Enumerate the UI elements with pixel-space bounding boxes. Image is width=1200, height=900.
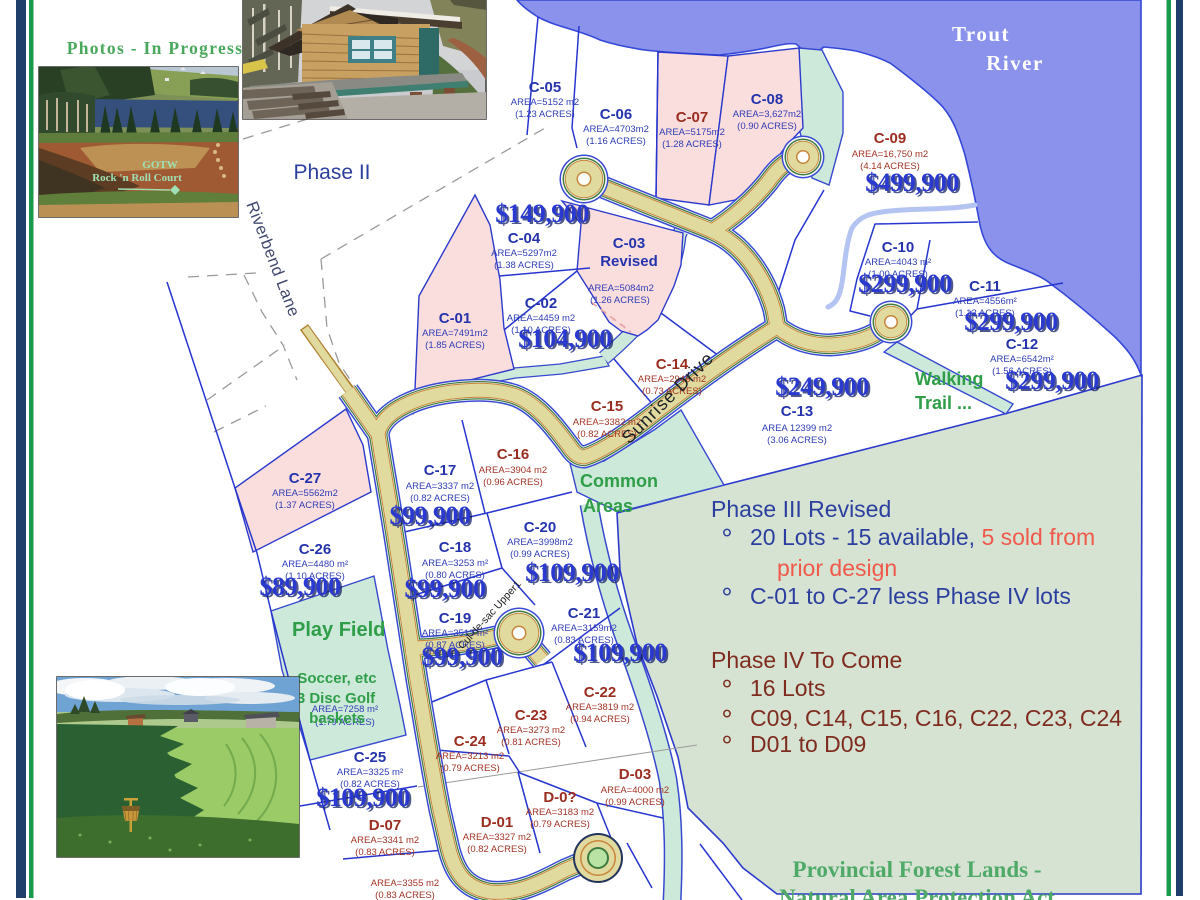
svg-text:C-26: C-26: [299, 541, 332, 558]
svg-text:Common: Common: [580, 471, 658, 491]
svg-text:$99,900: $99,900: [390, 501, 472, 530]
svg-text:AREA=4459 m2: AREA=4459 m2: [507, 313, 575, 324]
svg-text:D01 to D09: D01 to D09: [750, 731, 866, 757]
svg-text:20 Lots - 15 available, 5 sold: 20 Lots - 15 available, 5 sold from: [750, 524, 1095, 550]
svg-text:C-15: C-15: [591, 398, 624, 415]
svg-text:AREA=3325 m²: AREA=3325 m²: [337, 767, 403, 778]
svg-text:(1.28 ACRES): (1.28 ACRES): [662, 139, 722, 150]
svg-text:(0.82 ACRES): (0.82 ACRES): [467, 844, 527, 855]
svg-text:(0.81 ACRES): (0.81 ACRES): [501, 737, 561, 748]
svg-text:C-16: C-16: [497, 446, 530, 463]
svg-text:River: River: [986, 51, 1044, 75]
svg-text:C-20: C-20: [524, 519, 557, 536]
svg-text:D-03: D-03: [619, 766, 652, 783]
svg-text:Phase II: Phase II: [293, 161, 370, 184]
svg-text:$299,900: $299,900: [1005, 366, 1099, 395]
svg-text:AREA=4043 m²: AREA=4043 m²: [865, 257, 931, 268]
svg-text:Phase III Revised: Phase III Revised: [711, 496, 891, 522]
svg-text:C-24: C-24: [454, 733, 487, 750]
svg-text:$299,900: $299,900: [858, 269, 952, 298]
svg-text:$99,900: $99,900: [405, 574, 487, 603]
svg-text:AREA=5297m2: AREA=5297m2: [491, 248, 557, 259]
svg-text:C-01 to C-27 less Phase IV lot: C-01 to C-27 less Phase IV lots: [750, 583, 1071, 609]
svg-text:$149,900: $149,900: [495, 199, 589, 228]
svg-text:°: °: [721, 730, 732, 761]
svg-text:baskets: baskets: [309, 710, 365, 727]
svg-text:$104,900: $104,900: [518, 324, 612, 353]
svg-text:AREA=4703m2: AREA=4703m2: [583, 124, 649, 135]
svg-text:C-25: C-25: [354, 749, 387, 766]
svg-text:C-18: C-18: [439, 539, 472, 556]
svg-text:Play Field: Play Field: [292, 619, 385, 641]
svg-text:AREA=7491m2: AREA=7491m2: [422, 328, 488, 339]
svg-text:AREA=3341 m2: AREA=3341 m2: [351, 835, 419, 846]
svg-text:AREA=3327 m2: AREA=3327 m2: [463, 832, 531, 843]
svg-text:(0.90 ACRES): (0.90 ACRES): [737, 121, 797, 132]
svg-text:C-09: C-09: [874, 130, 907, 147]
svg-text:Trout: Trout: [952, 22, 1010, 46]
svg-text:C-04: C-04: [508, 230, 541, 247]
svg-text:C-05: C-05: [529, 79, 562, 96]
svg-text:AREA=6542m²: AREA=6542m²: [990, 354, 1054, 365]
svg-text:Provincial Forest Lands -: Provincial Forest Lands -: [793, 857, 1042, 882]
svg-text:D-0?: D-0?: [543, 789, 576, 806]
svg-text:AREA=4556m²: AREA=4556m²: [953, 296, 1017, 307]
svg-text:C-08: C-08: [751, 91, 784, 108]
svg-text:(0.79 ACRES): (0.79 ACRES): [440, 763, 500, 774]
svg-text:(3.06 ACRES): (3.06 ACRES): [767, 435, 827, 446]
svg-text:°: °: [721, 582, 732, 613]
svg-text:AREA 12399 m2: AREA 12399 m2: [762, 423, 832, 434]
svg-text:$89,900: $89,900: [260, 572, 342, 601]
svg-text:$299,900: $299,900: [964, 307, 1058, 336]
svg-text:D-07: D-07: [369, 817, 402, 834]
svg-text:AREA=3159m2: AREA=3159m2: [551, 623, 617, 634]
svg-text:°: °: [721, 674, 732, 705]
svg-text:$109,900: $109,900: [525, 558, 619, 587]
svg-text:16 Lots: 16 Lots: [750, 675, 825, 701]
svg-text:(1.16 ACRES): (1.16 ACRES): [586, 136, 646, 147]
svg-text:(0.83 ACRES): (0.83 ACRES): [375, 890, 435, 900]
svg-text:AREA=5562m2: AREA=5562m2: [272, 488, 338, 499]
svg-text:Soccer, etc: Soccer, etc: [297, 670, 376, 687]
svg-text:Rock 'n Roll Court: Rock 'n Roll Court: [92, 172, 182, 184]
svg-text:Phase IV To Come: Phase IV To Come: [711, 647, 902, 673]
svg-text:C-07: C-07: [676, 109, 709, 126]
svg-text:(0.96 ACRES): (0.96 ACRES): [483, 477, 543, 488]
svg-text:AREA=5152 m2: AREA=5152 m2: [511, 97, 579, 108]
svg-text:(1.26 ACRES): (1.26 ACRES): [590, 295, 650, 306]
svg-text:AREA=5175m2: AREA=5175m2: [659, 127, 725, 138]
svg-text:AREA=3904 m2: AREA=3904 m2: [479, 465, 547, 476]
svg-text:AREA=3,627m2: AREA=3,627m2: [733, 109, 801, 120]
svg-text:Trail ...: Trail ...: [915, 393, 972, 413]
svg-text:D-01: D-01: [481, 814, 514, 831]
svg-text:Natural Area Protection Act: Natural Area Protection Act: [779, 885, 1055, 900]
svg-text:AREA=3819 m2: AREA=3819 m2: [566, 702, 634, 713]
svg-text:GOTW: GOTW: [142, 159, 177, 171]
svg-text:C-02: C-02: [525, 295, 558, 312]
svg-text:C-10: C-10: [882, 239, 915, 256]
svg-text:$109,900: $109,900: [573, 638, 667, 667]
svg-text:C-06: C-06: [600, 106, 633, 123]
svg-text:C-21: C-21: [568, 605, 601, 622]
svg-text:Walking: Walking: [915, 369, 983, 389]
svg-text:(1.38 ACRES): (1.38 ACRES): [494, 260, 554, 271]
svg-text:Photos - In Progress: Photos - In Progress: [67, 38, 244, 58]
svg-text:(0.94 ACRES): (0.94 ACRES): [570, 714, 630, 725]
svg-text:AREA=3273 m2: AREA=3273 m2: [497, 725, 565, 736]
svg-text:3 Disc Golf: 3 Disc Golf: [297, 690, 376, 707]
svg-text:C-11: C-11: [969, 278, 1001, 295]
svg-text:$499,900: $499,900: [865, 168, 959, 197]
svg-text:C-12: C-12: [1006, 336, 1039, 353]
svg-text:C-17: C-17: [424, 462, 457, 479]
svg-text:(0.99 ACRES): (0.99 ACRES): [605, 797, 665, 808]
svg-text:AREA=4000 m2: AREA=4000 m2: [601, 785, 669, 796]
svg-text:C-01: C-01: [439, 310, 472, 327]
svg-text:(1.37 ACRES): (1.37 ACRES): [275, 500, 335, 511]
svg-text:C-03: C-03: [613, 235, 646, 252]
svg-text:C-22: C-22: [584, 684, 617, 701]
svg-text:$109,900: $109,900: [316, 783, 410, 812]
svg-text:AREA=3213 m2: AREA=3213 m2: [436, 751, 504, 762]
svg-text:AREA=3253 m²: AREA=3253 m²: [422, 558, 488, 569]
svg-text:AREA=3337 m2: AREA=3337 m2: [406, 481, 474, 492]
svg-text:(1.23 ACRES): (1.23 ACRES): [515, 109, 575, 120]
svg-text:AREA=3355 m2: AREA=3355 m2: [371, 878, 439, 889]
svg-text:C-27: C-27: [289, 470, 322, 487]
svg-text:AREA=16,750 m2: AREA=16,750 m2: [852, 149, 928, 160]
svg-text:C-23: C-23: [515, 707, 548, 724]
svg-text:C-19: C-19: [439, 610, 472, 627]
svg-text:C09, C14, C15, C16, C22, C23,: C09, C14, C15, C16, C22, C23, C24: [750, 705, 1122, 731]
svg-text:prior design: prior design: [777, 555, 897, 581]
svg-text:AREA=5084m2: AREA=5084m2: [588, 283, 654, 294]
svg-text:(1.85 ACRES): (1.85 ACRES): [425, 340, 485, 351]
svg-text:AREA=3998m2: AREA=3998m2: [507, 537, 573, 548]
svg-text:AREA=3183 m2: AREA=3183 m2: [526, 807, 594, 818]
svg-text:C-13: C-13: [781, 403, 814, 420]
svg-text:(0.79 ACRES): (0.79 ACRES): [530, 819, 590, 830]
svg-text:(0.83 ACRES): (0.83 ACRES): [355, 847, 415, 858]
svg-text:Revised: Revised: [600, 253, 658, 270]
svg-text:Areas: Areas: [583, 496, 633, 516]
svg-text:°: °: [721, 523, 732, 554]
svg-text:AREA=4480 m²: AREA=4480 m²: [282, 559, 348, 570]
svg-text:$249,900: $249,900: [775, 372, 869, 401]
